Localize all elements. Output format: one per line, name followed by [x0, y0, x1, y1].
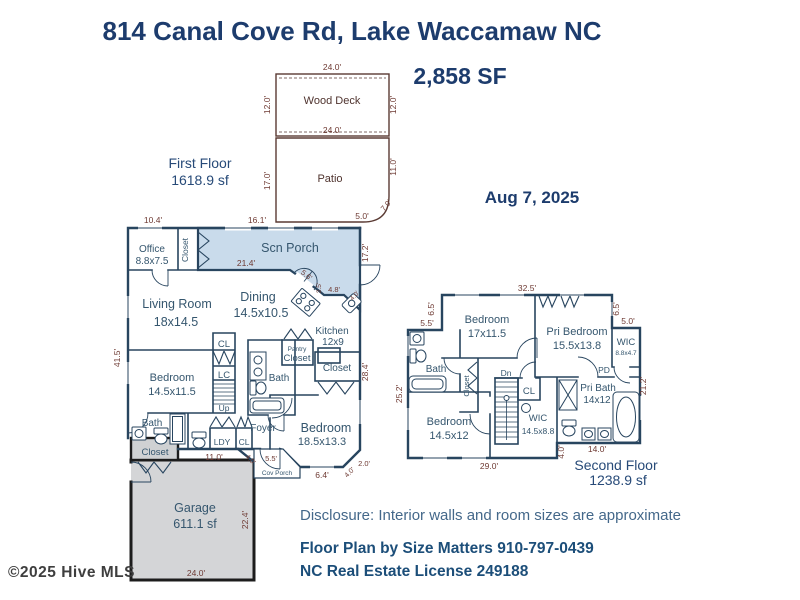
room-label-pri-bedroom: Pri Bedroom	[546, 326, 607, 338]
dim-sf-right-step: 5.0'	[621, 316, 635, 326]
dim-deck-top: 24.0'	[323, 62, 342, 72]
room-label-office: Office	[139, 244, 165, 255]
ceiling-fan-icon	[522, 404, 531, 413]
dim-patio-left: 17.0'	[262, 172, 272, 191]
room-dims-kitchen: 12x9	[322, 337, 344, 348]
dim-bottom-hall: 11.0'	[205, 452, 223, 462]
room-label-scn-porch: Scn Porch	[261, 241, 319, 255]
room-label-hall-closet: Closet	[180, 237, 190, 262]
dim-bay-right: 2.0'	[358, 459, 370, 468]
dim-cov-porch-top: 5.5'	[265, 454, 277, 463]
dim-kitchen-side: 2.5'	[316, 283, 323, 293]
dim-sf-bottom: 29.0'	[480, 461, 499, 471]
room-label-wic-large: WIC	[529, 413, 548, 424]
pocket-door-label: PD	[598, 365, 610, 375]
room-label-garage: Garage	[174, 501, 216, 515]
dim-patio-right: 11.0'	[388, 158, 398, 176]
room-label-bedroom-top: Bedroom	[465, 314, 510, 326]
footer: Disclosure: Interior walls and room size…	[8, 507, 681, 581]
date-label: Aug 7, 2025	[485, 188, 580, 207]
dim-ff-top-left: 10.4'	[144, 215, 163, 225]
room-area-garage: 611.1 sf	[173, 517, 217, 531]
dim-bay-bottom: 6.4'	[315, 470, 329, 480]
room-label-laundry-closet: CL	[239, 437, 250, 447]
dim-patio-bottom: 5.0'	[355, 211, 369, 221]
room-label-sf-cl: CL	[523, 386, 535, 397]
watermark: ©2025 Hive MLS	[8, 564, 135, 581]
second-floor-label: Second Floor	[574, 457, 658, 473]
room-dims-pri-bath: 14x12	[583, 395, 611, 406]
room-label-pantry-2: Closet	[284, 353, 311, 364]
dim-deck-left: 12.0'	[262, 96, 272, 115]
second-floor-area: 1238.9 sf	[589, 472, 647, 488]
room-label-dining: Dining	[240, 290, 275, 304]
dim-deck-right: 12.0'	[388, 96, 398, 115]
dim-porch-width: 21.4'	[237, 258, 256, 268]
room-dims-bedroom-right: 18.5x13.3	[298, 436, 346, 448]
room-label-bath-left: Bath	[142, 418, 163, 429]
room-label-kitchen: Kitchen	[315, 326, 348, 337]
stairs-down-label: Dn	[501, 368, 512, 378]
room-dims-bedroom-bottom: 14.5x12	[429, 430, 468, 442]
room-label-sf-bath: Bath	[426, 364, 447, 375]
room-label-laundry: LDY	[214, 437, 231, 447]
credit-line-2: NC Real Estate License 249188	[300, 563, 529, 580]
dim-garage-bottom: 24.0'	[187, 568, 206, 578]
dim-kitchen-top: 4.8'	[328, 285, 340, 294]
dim-sf-top: 32.5'	[518, 283, 537, 293]
room-dims-bedroom-left: 14.5x11.5	[148, 386, 196, 398]
room-label-bath-center: Bath	[269, 373, 290, 384]
dim-sf-right-drop: 4.0'	[556, 445, 566, 459]
room-label-bedroom-right: Bedroom	[301, 421, 352, 435]
stairs-up	[213, 384, 235, 404]
room-label-pri-bath: Pri Bath	[580, 383, 616, 394]
room-label-bedroom-left: Bedroom	[150, 372, 195, 384]
room-dims-bedroom-top: 17x11.5	[468, 328, 506, 340]
room-dims-office: 8.8x7.5	[136, 256, 169, 267]
dim-ff-top-mid: 16.1'	[248, 215, 267, 225]
total-area-label: 2,858 SF	[413, 63, 506, 89]
room-label-cl: CL	[218, 339, 230, 350]
room-dims-living: 18x14.5	[154, 315, 199, 329]
stairs-up-label: Up	[219, 403, 230, 413]
room-label-pantry-1: Pantry	[288, 346, 308, 353]
room-label-bedroom-bottom: Bedroom	[427, 416, 472, 428]
second-floor-plan: Bedroom 17x11.5 Pri Bedroom 15.5x13.8 WI…	[394, 283, 648, 471]
room-dims-pri-bedroom: 15.5x13.8	[553, 340, 601, 352]
dim-sf-right-side: 21.2'	[638, 377, 648, 396]
dim-porch-right: 17.2'	[360, 244, 370, 263]
outdoor-structures: Wood Deck Patio 24.0' 12.0' 12.0' 24.0' …	[262, 62, 398, 222]
dim-sf-top-left-side: 6.5'	[426, 302, 436, 316]
dim-pri-bath-bottom: 14.0'	[588, 444, 607, 454]
dim-ff-right-side: 28.4'	[360, 363, 370, 382]
room-label-living: Living Room	[142, 297, 211, 311]
dim-sf-top-right-side: 6.5'	[611, 302, 621, 316]
dim-garage-right: 22.4'	[240, 511, 250, 530]
patio-label: Patio	[317, 173, 342, 185]
first-floor-label: First Floor	[169, 155, 232, 171]
credit-line-1: Floor Plan by Size Matters 910-797-0439	[300, 540, 594, 557]
first-floor-area: 1618.9 sf	[171, 172, 229, 188]
dim-deck-bottom: 24.0'	[323, 125, 342, 135]
disclosure-text: Disclosure: Interior walls and room size…	[300, 507, 681, 524]
dim-ff-left-side: 41.5'	[112, 349, 122, 368]
room-label-sf-closet: Closet	[462, 374, 471, 396]
room-dims-wic-large: 14.5x8.8	[522, 426, 555, 436]
floor-plan-page: 814 Canal Cove Rd, Lake Waccamaw NC 2,85…	[0, 0, 800, 600]
room-dims-wic-small: 8.8x4.7	[615, 350, 637, 357]
wood-deck-label: Wood Deck	[304, 95, 361, 107]
sf-bath-fixtures	[409, 332, 446, 392]
first-floor-plan: Office 8.8x7.5 Closet Scn Porch Living R…	[112, 215, 380, 580]
dim-sf-left-step: 5.5'	[420, 318, 434, 328]
room-label-cov-porch: Cov Porch	[262, 470, 293, 477]
room-label-garage-closet: Closet	[142, 447, 169, 458]
kitchen-counter	[318, 348, 340, 363]
floor-plan-svg: 814 Canal Cove Rd, Lake Waccamaw NC 2,85…	[0, 0, 800, 600]
stairs-down	[495, 378, 518, 444]
room-label-wic-small: WIC	[617, 337, 636, 348]
page-title: 814 Canal Cove Rd, Lake Waccamaw NC	[102, 16, 601, 46]
dim-sf-left-side: 25.2'	[394, 385, 404, 404]
room-label-foyer: Foyer	[250, 423, 276, 434]
dim-bay-diag: 4.0'	[344, 467, 357, 480]
room-label-lc: LC	[218, 370, 230, 381]
room-label-closet-right: Closet	[323, 363, 352, 374]
room-dims-dining: 14.5x10.5	[234, 306, 289, 320]
